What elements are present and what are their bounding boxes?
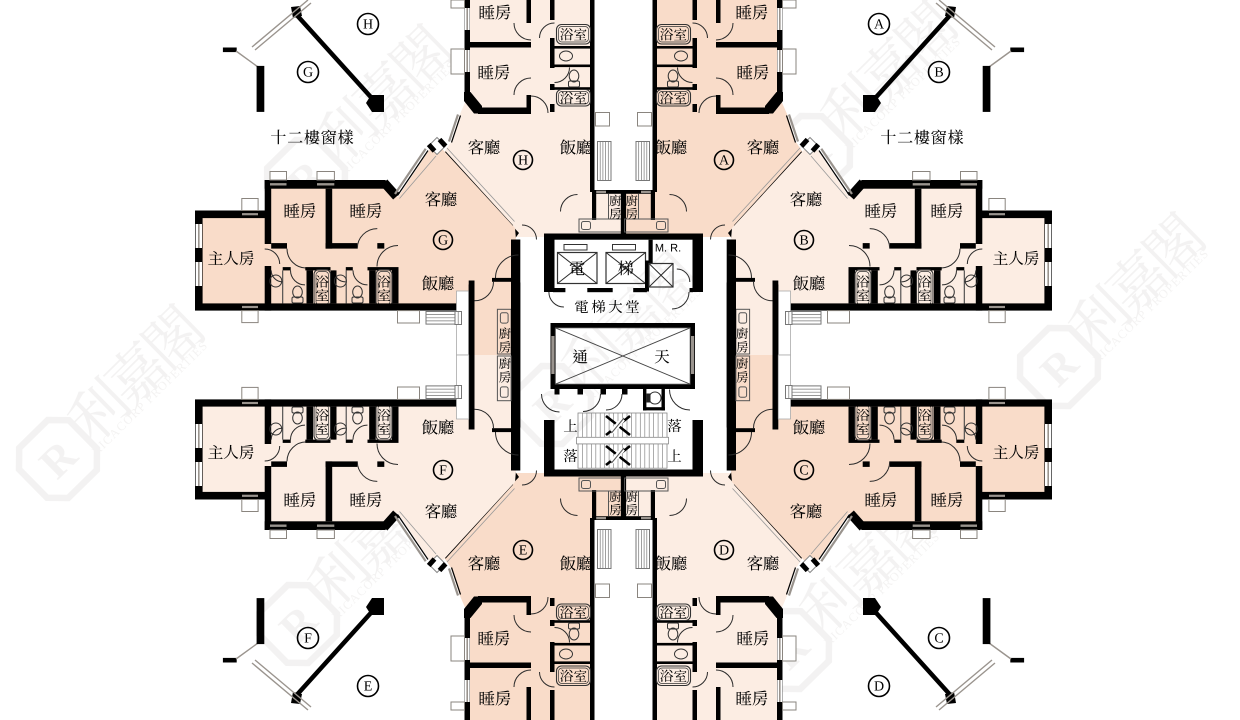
svg-text:C: C (934, 632, 943, 647)
svg-text:D: D (874, 680, 884, 695)
svg-text:F: F (439, 464, 447, 479)
svg-text:M. R.: M. R. (655, 242, 681, 254)
svg-text:A: A (719, 154, 730, 169)
svg-text:A: A (874, 18, 885, 33)
svg-text:B: B (934, 66, 943, 81)
svg-text:E: E (519, 544, 528, 559)
svg-text:C: C (799, 464, 808, 479)
svg-text:H: H (518, 154, 528, 169)
svg-text:G: G (438, 234, 448, 249)
svg-text:H: H (363, 18, 373, 33)
svg-text:D: D (719, 544, 729, 559)
svg-text:G: G (303, 66, 313, 81)
svg-text:E: E (364, 680, 373, 695)
svg-text:F: F (304, 632, 312, 647)
svg-text:B: B (799, 234, 808, 249)
